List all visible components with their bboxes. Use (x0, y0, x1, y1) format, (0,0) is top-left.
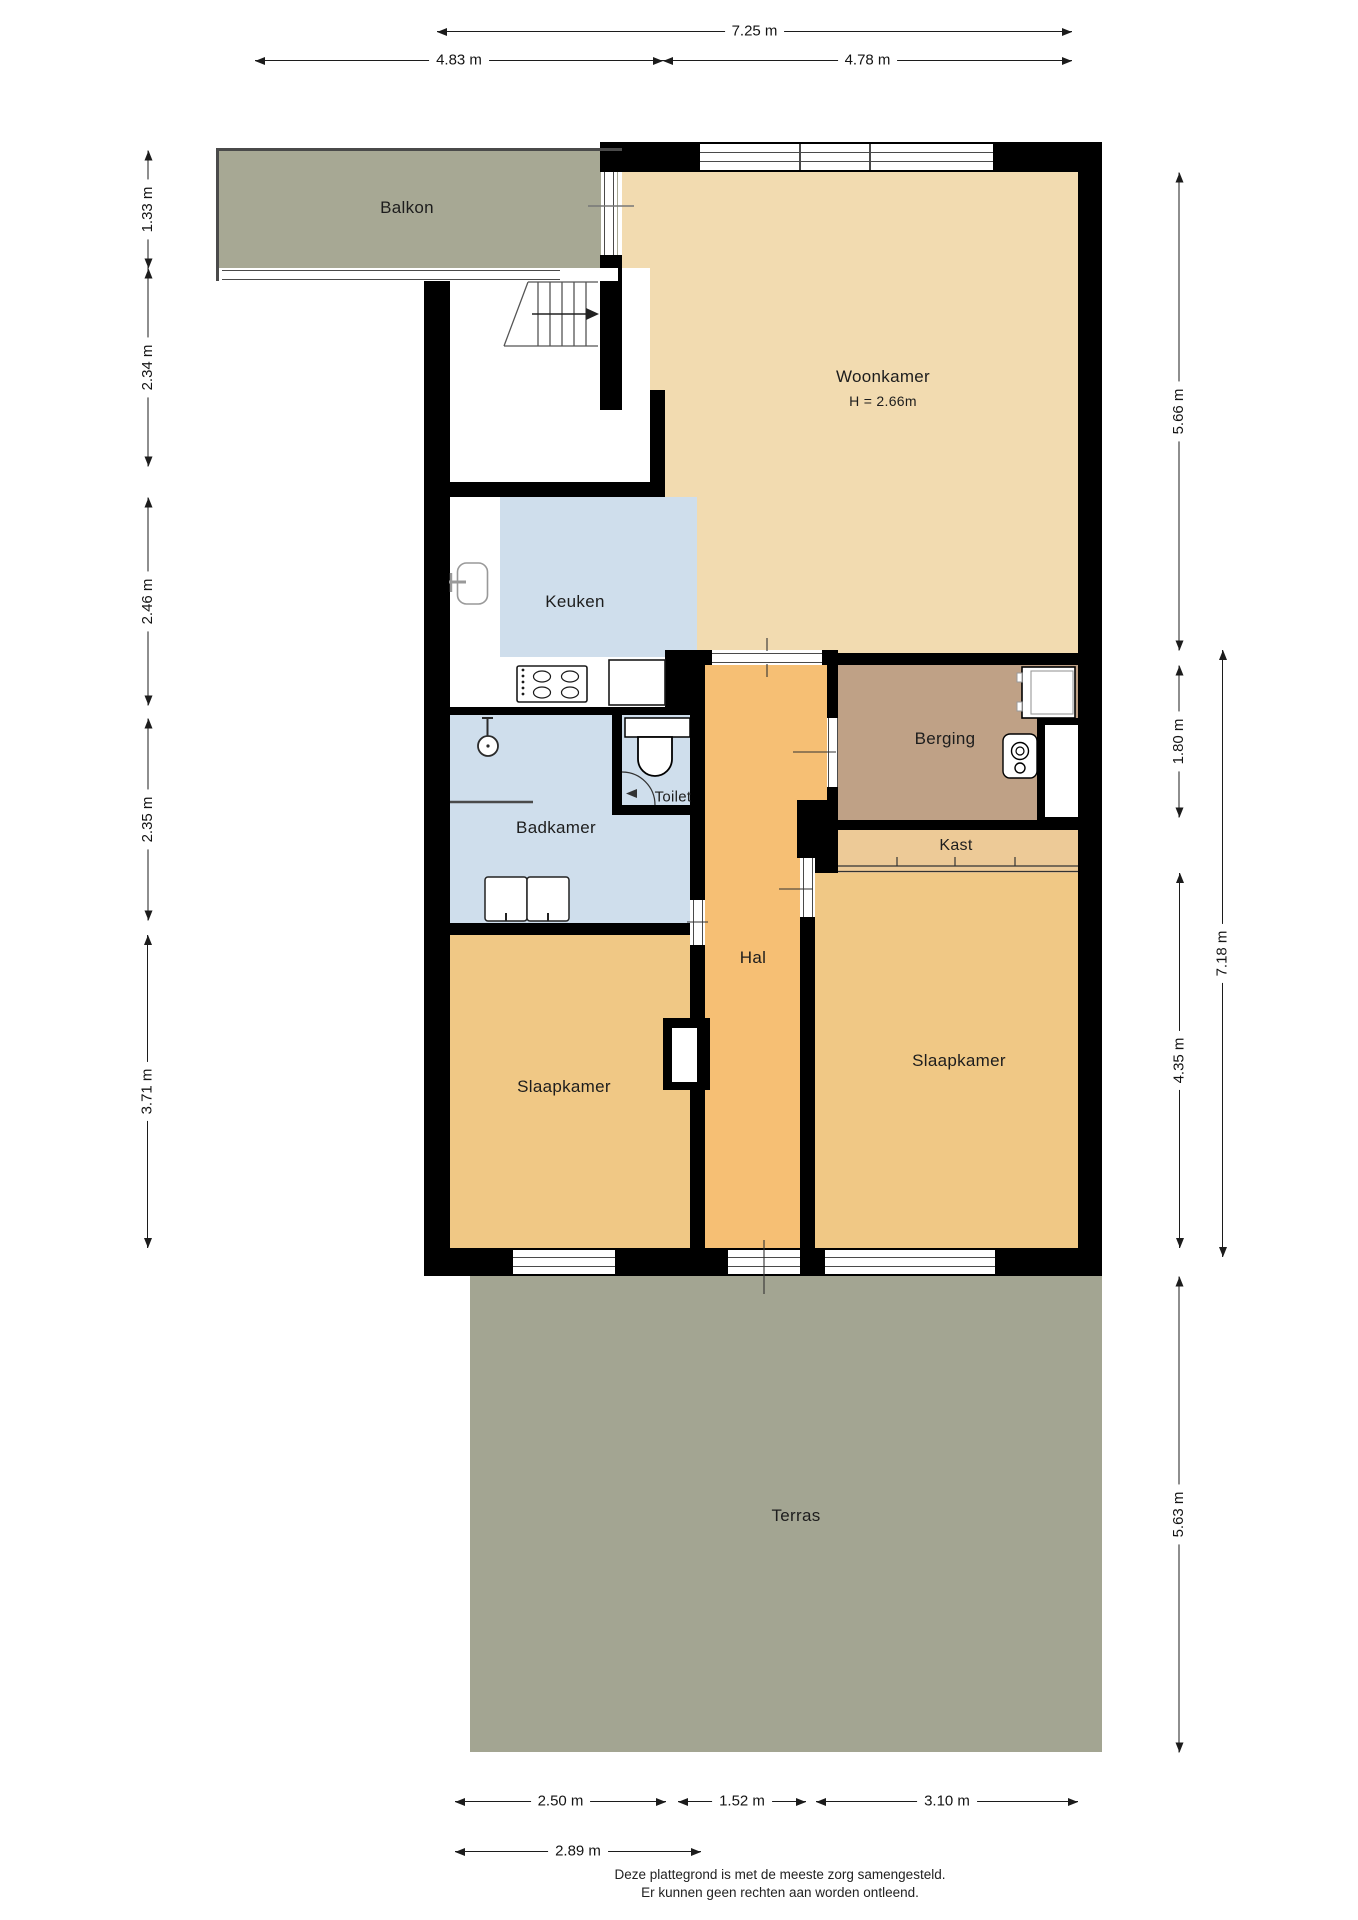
dim-top-left: 4.83 m (255, 60, 663, 61)
disclaimer-line-2: Er kunnen geen rechten aan worden ontlee… (380, 1884, 1180, 1902)
dim-top-right: 4.78 m (663, 60, 1072, 61)
dim-bottom-hal: 1.52 m (678, 1801, 806, 1802)
dim-right-berging: 1.80 m (1179, 666, 1180, 818)
dim-bottom-slaapkamer-rechts: 3.10 m (816, 1801, 1078, 1802)
label-toilet: Toilet (655, 789, 692, 806)
fixtures-layer (0, 0, 1358, 1920)
disclaimer-line-1: Deze plattegrond is met de meeste zorg s… (380, 1866, 1180, 1884)
dim-right-total: 7.18 m (1222, 650, 1223, 1257)
washing-machine-icon (1017, 667, 1075, 718)
label-hal: Hal (740, 948, 766, 968)
dim-left-balkon: 1.33 m (148, 151, 149, 269)
dim-right-slaapkamer: 4.35 m (1179, 873, 1180, 1248)
shower-icon (478, 718, 498, 756)
label-keuken: Keuken (545, 592, 604, 612)
label-balkon: Balkon (380, 198, 434, 218)
dim-left-slaapkamer: 3.71 m (147, 935, 148, 1248)
dim-bottom-extra: 2.89 m (455, 1851, 701, 1852)
dim-right-woonkamer: 5.66 m (1179, 173, 1180, 651)
sink-icon (449, 563, 488, 604)
disclaimer: Deze plattegrond is met de meeste zorg s… (380, 1866, 1180, 1902)
washbasin-icon (485, 877, 569, 921)
dim-left-badkamer: 2.35 m (148, 719, 149, 921)
closet-doors (838, 857, 1078, 872)
label-slaapkamer-links: Slaapkamer (517, 1077, 611, 1097)
dim-bottom-slaapkamer-links: 2.50 m (455, 1801, 666, 1802)
label-woonkamer-height: H = 2.66m (849, 393, 917, 409)
stove-icon (517, 666, 587, 702)
floorplan-canvas: Balkon Woonkamer H = 2.66m Keuken Badkam… (0, 0, 1358, 1920)
boiler-icon (1003, 734, 1037, 778)
label-woonkamer: Woonkamer (836, 367, 930, 387)
dim-left-entry: 2.34 m (148, 269, 149, 467)
dim-top-total: 7.25 m (437, 31, 1072, 32)
cabinet-icon (609, 660, 665, 705)
label-badkamer: Badkamer (516, 818, 596, 838)
toilet-icon (625, 718, 690, 776)
label-terras: Terras (771, 1506, 820, 1526)
dim-right-terras: 5.63 m (1179, 1277, 1180, 1753)
label-berging: Berging (915, 729, 976, 749)
stairs-icon (504, 282, 599, 346)
toilet-door-arc (622, 772, 655, 805)
dim-left-keuken: 2.46 m (148, 498, 149, 706)
label-kast: Kast (939, 837, 972, 855)
label-slaapkamer-rechts: Slaapkamer (912, 1051, 1006, 1071)
